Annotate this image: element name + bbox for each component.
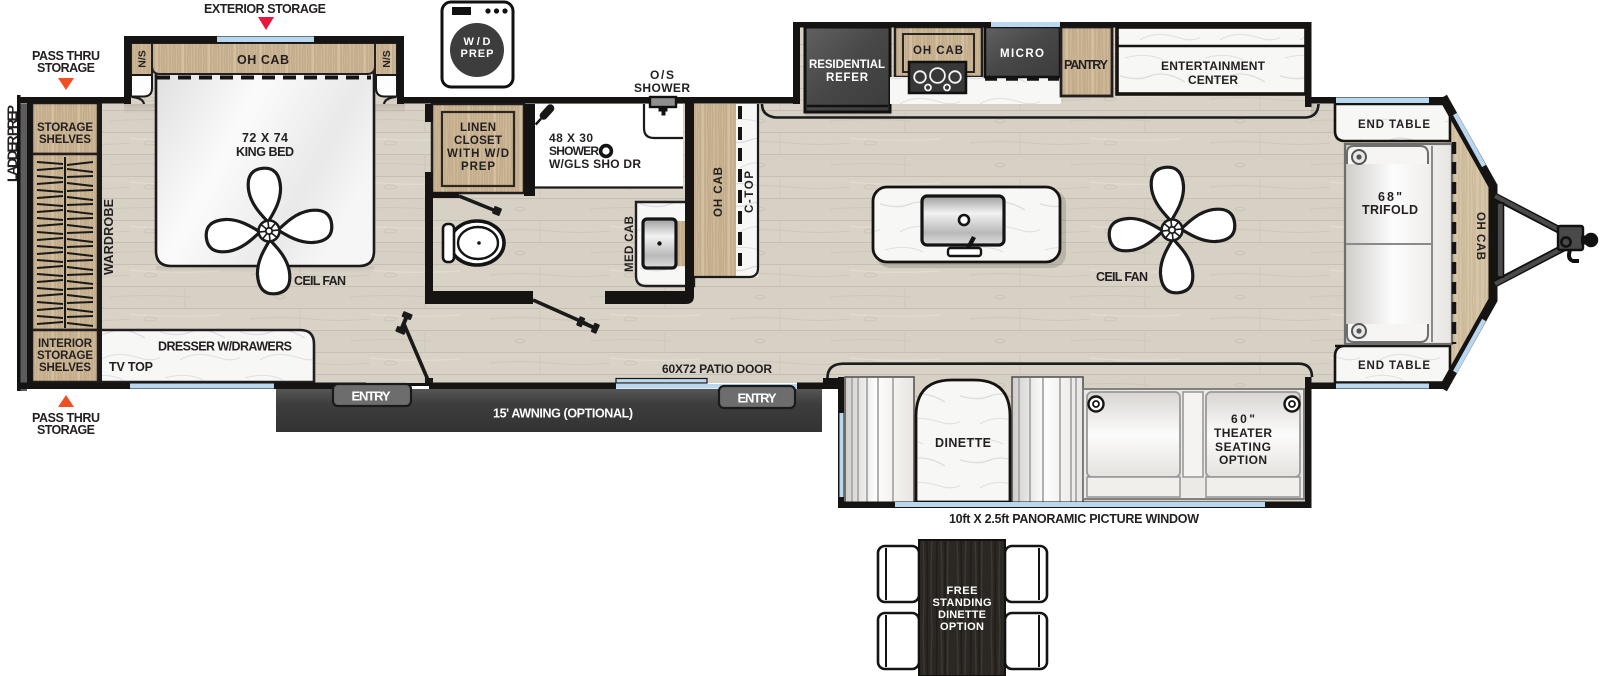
svg-text:END TABLE: END TABLE xyxy=(1358,119,1430,131)
svg-text:C-TOP: C-TOP xyxy=(744,171,756,213)
svg-text:ENTRY: ENTRY xyxy=(738,391,777,406)
svg-text:CLOSET: CLOSET xyxy=(454,135,502,147)
svg-text:N/S: N/S xyxy=(381,50,393,68)
svg-text:SHOWER: SHOWER xyxy=(634,81,690,95)
svg-text:OPTION: OPTION xyxy=(940,621,984,633)
svg-text:LADDER PREP: LADDER PREP xyxy=(4,105,20,182)
svg-text:68": 68" xyxy=(1378,190,1402,204)
svg-text:60": 60" xyxy=(1231,412,1255,426)
svg-text:CEIL FAN: CEIL FAN xyxy=(1096,270,1148,284)
svg-text:END TABLE: END TABLE xyxy=(1358,360,1430,372)
svg-text:WARDROBE: WARDROBE xyxy=(102,199,116,275)
svg-text:OH CAB: OH CAB xyxy=(713,167,725,217)
svg-text:CENTER: CENTER xyxy=(1188,73,1238,87)
svg-text:15' AWNING (OPTIONAL): 15' AWNING (OPTIONAL) xyxy=(493,407,633,421)
svg-text:W/D: W/D xyxy=(464,36,491,48)
svg-text:FREE: FREE xyxy=(947,585,978,597)
svg-text:10ft X 2.5ft PANORAMIC PICTURE: 10ft X 2.5ft PANORAMIC PICTURE WINDOW xyxy=(949,512,1199,526)
svg-text:48 X 30: 48 X 30 xyxy=(549,131,593,145)
svg-text:SHELVES: SHELVES xyxy=(39,362,91,374)
svg-text:OPTION: OPTION xyxy=(1219,453,1267,467)
svg-text:60X72 PATIO DOOR: 60X72 PATIO DOOR xyxy=(662,362,772,376)
svg-text:INTERIOR: INTERIOR xyxy=(38,338,93,350)
svg-text:O/S: O/S xyxy=(650,68,674,82)
svg-text:EXTERIOR STORAGE: EXTERIOR STORAGE xyxy=(204,2,326,16)
svg-text:KING BED: KING BED xyxy=(236,145,294,159)
svg-text:DRESSER W/DRAWERS: DRESSER W/DRAWERS xyxy=(158,340,292,354)
svg-text:MED CAB: MED CAB xyxy=(624,216,636,272)
svg-text:REFER: REFER xyxy=(826,72,869,84)
svg-text:OH CAB: OH CAB xyxy=(1474,212,1486,260)
svg-text:SHELVES: SHELVES xyxy=(39,134,91,146)
svg-text:TRIFOLD: TRIFOLD xyxy=(1362,203,1418,217)
svg-text:PREP: PREP xyxy=(461,48,494,60)
svg-text:DINETTE: DINETTE xyxy=(935,436,991,450)
svg-text:OH CAB: OH CAB xyxy=(913,45,963,57)
svg-text:STANDING: STANDING xyxy=(933,597,992,609)
svg-text:OH CAB: OH CAB xyxy=(237,53,289,67)
svg-text:CEIL FAN: CEIL FAN xyxy=(294,274,346,288)
svg-text:N/S: N/S xyxy=(137,50,149,68)
svg-text:MICRO: MICRO xyxy=(1000,48,1044,60)
svg-text:SHOWER: SHOWER xyxy=(549,144,599,158)
svg-text:THEATER: THEATER xyxy=(1214,426,1272,440)
svg-text:PREP: PREP xyxy=(461,161,495,173)
svg-text:LINEN: LINEN xyxy=(460,122,496,134)
svg-text:SEATING: SEATING xyxy=(1215,440,1271,454)
svg-text:STORAGE: STORAGE xyxy=(37,350,93,362)
svg-text:RESIDENTIAL: RESIDENTIAL xyxy=(809,59,885,71)
svg-text:DINETTE: DINETTE xyxy=(938,609,986,621)
svg-text:STORAGE: STORAGE xyxy=(37,61,95,75)
svg-text:W/GLS SHO DR: W/GLS SHO DR xyxy=(549,157,641,171)
svg-text:TV TOP: TV TOP xyxy=(109,360,153,374)
svg-text:ENTRY: ENTRY xyxy=(352,389,391,404)
svg-text:ENTERTAINMENT: ENTERTAINMENT xyxy=(1161,59,1266,73)
svg-text:72 X 74: 72 X 74 xyxy=(242,131,288,145)
svg-text:STORAGE: STORAGE xyxy=(37,122,93,134)
svg-text:STORAGE: STORAGE xyxy=(37,423,95,437)
svg-text:PANTRY: PANTRY xyxy=(1064,58,1109,72)
